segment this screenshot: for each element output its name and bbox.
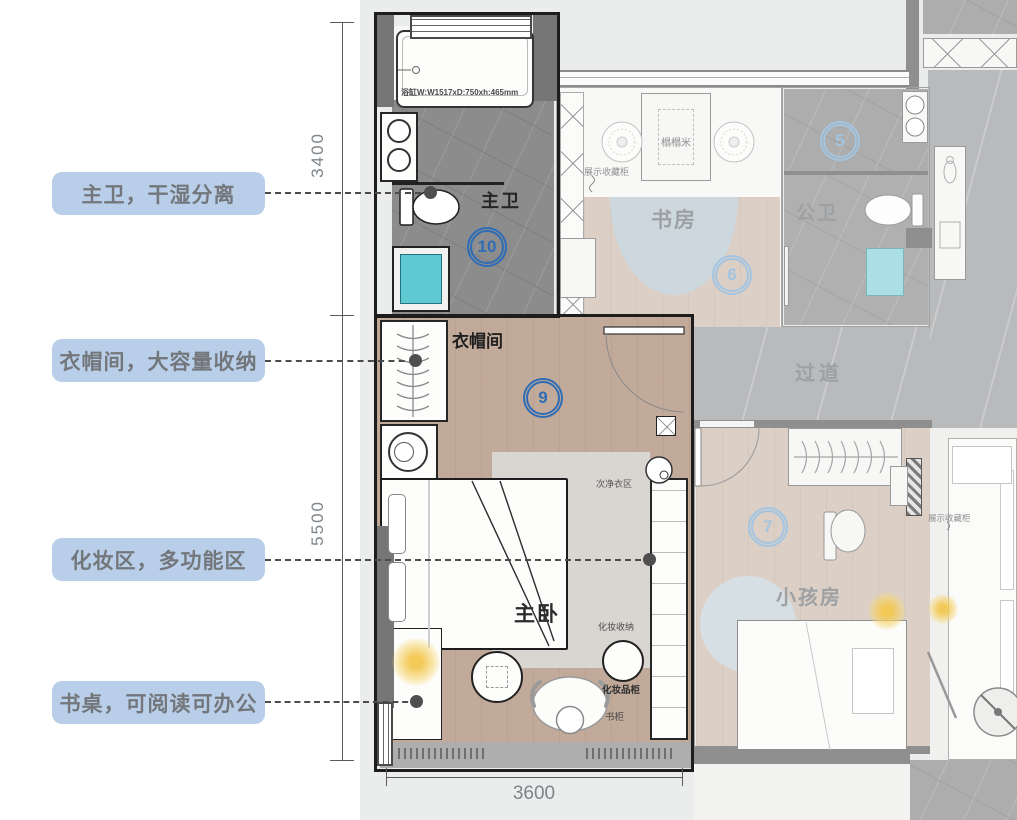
wall-partition <box>392 182 504 185</box>
connector-dot <box>410 695 423 708</box>
sofa-cushion <box>1000 600 1014 720</box>
cloakroom-label: 衣帽间 <box>452 327 503 352</box>
wall-hatch <box>906 458 922 516</box>
living-lamp-glow <box>928 594 958 624</box>
left-window <box>377 702 393 766</box>
dimension-tick <box>330 315 354 316</box>
connector-dot <box>643 553 656 566</box>
dimension-line-vertical <box>342 22 343 760</box>
makeup-cabinet-column <box>650 478 688 740</box>
bed-sheet-line <box>428 480 430 648</box>
display-cabinet-living-label: 展示收藏柜 <box>928 512 971 524</box>
bed-pillow <box>388 494 406 554</box>
callout-makeup-area: 化妆区，多功能区 <box>52 538 265 581</box>
floorplan-canvas: 榻榻米 展示收藏柜 书房 6 5 公卫 过道 7 小孩房 展示收藏柜 浴缸W:W… <box>0 0 1017 820</box>
makeup-stool <box>602 640 644 682</box>
dimension-5500: 5500 <box>308 500 328 546</box>
dimension-tick <box>330 22 354 23</box>
shower-tray <box>400 254 442 304</box>
top-right-cabinet <box>923 38 1017 68</box>
callout-connector <box>265 559 651 561</box>
dimension-tick <box>682 768 683 786</box>
callout-master-bath: 主卫，干湿分离 <box>52 172 265 215</box>
kids-wardrobe <box>788 428 902 486</box>
dimension-3400: 3400 <box>308 132 328 178</box>
master-bath-label: 主卫 <box>481 187 521 213</box>
callout-connector <box>265 192 431 194</box>
master-bedroom-label: 主卧 <box>514 598 560 628</box>
kids-room-label: 小孩房 <box>776 581 842 610</box>
marker-7: 7 <box>748 507 788 547</box>
washbasin-bowl <box>387 148 411 172</box>
bed-pillow <box>388 562 406 622</box>
desk-lamp-glow <box>392 638 440 686</box>
wall-segment <box>694 750 910 764</box>
public-bath-sink <box>866 248 904 296</box>
kids-pillow <box>852 648 894 714</box>
secondary-clothes-label: 次净衣区 <box>596 477 632 490</box>
marker-10: 10 <box>467 227 507 267</box>
top-window <box>410 15 532 39</box>
study-label: 书房 <box>651 204 697 234</box>
wall-segment <box>377 15 394 107</box>
bathtub-spec-label: 浴缸W:W1517xD:750xh:465mm <box>401 87 518 98</box>
cosmetics-cabinet-label: 化妆品柜 <box>602 682 640 696</box>
balcony-hatch <box>586 748 674 759</box>
top-wall-window-band <box>559 70 909 87</box>
sofa-table <box>952 446 1012 484</box>
callout-cloakroom: 衣帽间，大容量收纳 <box>52 339 265 382</box>
public-bath-door-leaf <box>784 246 789 306</box>
dimension-tick <box>330 760 354 761</box>
display-cabinet-study-label: 展示收藏柜 <box>584 165 629 178</box>
marker-6: 6 <box>712 255 752 295</box>
wall-segment <box>533 15 557 101</box>
bookshelf-label: 书柜 <box>605 709 624 723</box>
sofa-cushion <box>1000 470 1014 590</box>
bottom-right-floor <box>906 760 1017 820</box>
top-right-room-floor <box>923 0 1017 34</box>
corridor-label: 过道 <box>795 357 843 386</box>
connector-dot <box>409 354 422 367</box>
washer-unit <box>902 91 928 143</box>
laundry-basket-inner <box>394 442 414 462</box>
reading-stool-pattern <box>486 666 508 688</box>
dimension-3600: 3600 <box>494 783 574 805</box>
dimension-line-bottom <box>386 777 682 778</box>
wall-segment <box>906 228 932 248</box>
balcony-hatch <box>398 748 484 759</box>
washbasin-bowl <box>387 119 411 143</box>
corridor-cabinet <box>934 146 966 280</box>
callout-connector <box>265 360 415 362</box>
tatami-label: 榻榻米 <box>661 134 691 149</box>
kids-lamp-glow <box>868 592 906 630</box>
marker-5: 5 <box>820 121 860 161</box>
dimension-tick <box>386 768 387 786</box>
callout-desk: 书桌，可阅读可办公 <box>52 681 265 724</box>
marker-9: 9 <box>523 378 563 418</box>
makeup-storage-label: 化妆收纳 <box>598 620 634 633</box>
study-bench <box>560 238 596 298</box>
cloakroom-closet <box>380 320 448 422</box>
kids-door-gap <box>700 421 754 427</box>
public-bath-label: 公卫 <box>796 198 838 225</box>
connector-dot <box>424 186 437 199</box>
column-marker <box>656 416 676 436</box>
kd-box <box>890 466 908 506</box>
bottom-strip <box>694 764 910 820</box>
callout-connector <box>265 701 418 703</box>
